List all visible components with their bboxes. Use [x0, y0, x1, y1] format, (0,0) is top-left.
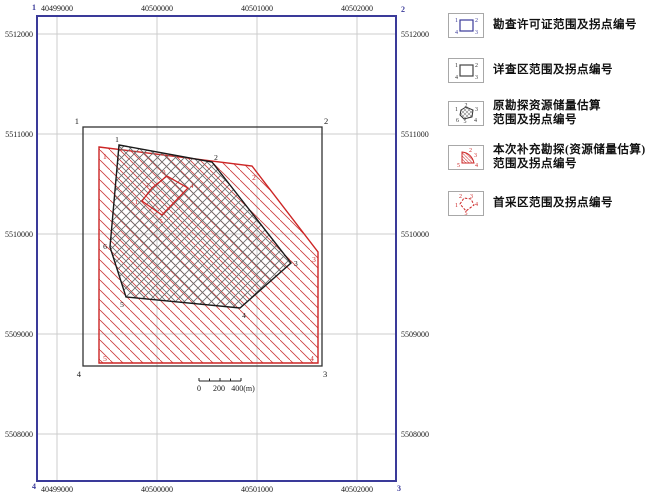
legend-corner-number: 1 [455, 18, 458, 24]
y-axis-label-left: 5512000 [5, 30, 33, 39]
x-axis-label-top: 40499000 [41, 4, 73, 13]
first-mining-corner-label: 2 [146, 182, 149, 189]
legend-corner-number: 1 [455, 107, 458, 113]
first-mining-legend-icon: 1 2 3 4 5 [448, 191, 484, 216]
first-mining-corner-label: 5 [159, 218, 162, 225]
legend-corner-number: 3 [475, 107, 478, 113]
supplement-corner-label: 1 [103, 152, 107, 161]
legend-corner-number: 2 [469, 148, 472, 154]
legend-corner-number: 3 [475, 30, 478, 36]
legend-corner-number: 5 [457, 163, 460, 169]
survey-legend-icon: 1 2 3 4 [448, 58, 484, 83]
survey-corner-label: 3 [323, 369, 327, 379]
legend-corner-number: 2 [475, 63, 478, 69]
y-axis-label-right: 5511000 [401, 130, 429, 139]
x-axis-label-top: 40500000 [141, 4, 173, 13]
y-axis-label-right: 5510000 [401, 230, 429, 239]
supplement-corner-label: 4 [310, 354, 314, 363]
legend-corner-number: 2 [459, 194, 462, 200]
legend-corner-number: 4 [474, 118, 477, 124]
x-axis-label-top: 40502000 [341, 4, 373, 13]
scale-bar-label: 400(m) [231, 384, 255, 393]
permit-corner-label: 1 [32, 3, 36, 12]
scale-bar-line [199, 378, 241, 381]
legend-corner-number: 4 [455, 75, 458, 81]
exploration-corner-label: 5 [120, 300, 124, 309]
legend-corner-number: 4 [455, 30, 458, 36]
legend-corner-number: 2 [465, 103, 468, 109]
x-axis-label-bottom: 40499000 [41, 485, 73, 494]
legend-label: 本次补充勘探(资源储量估算) 范围及拐点编号 [493, 144, 646, 171]
legend-corner-number: 1 [455, 203, 458, 209]
legend-item-permit: 1 2 3 4 勘查许可证范围及拐点编号 [448, 13, 637, 38]
survey-corner-label: 4 [77, 369, 82, 379]
y-axis-label-right: 5508000 [401, 430, 429, 439]
legend-corner-number: 3 [474, 153, 477, 159]
legend-corner-number: 1 [455, 63, 458, 69]
exploration-corner-label: 1 [115, 135, 119, 144]
exploration-corner-label: 2 [214, 153, 218, 162]
first-mining-corner-label: 1 [135, 199, 138, 206]
scale-bar-label: 0 [197, 384, 201, 393]
legend-corner-number: 2 [475, 18, 478, 24]
legend-item-first-mining: 1 2 3 4 5 首采区范围及拐点编号 [448, 191, 613, 216]
legend-label: 首采区范围及拐点编号 [493, 197, 613, 211]
exploration-corner-label: 3 [294, 259, 298, 268]
legend-corner-number: 3 [470, 194, 473, 200]
legend-label: 详查区范围及拐点编号 [493, 64, 613, 78]
legend-corner-number: 4 [475, 202, 478, 208]
y-axis-label-left: 5510000 [5, 230, 33, 239]
scale-bar: 0 200 400(m) [197, 378, 255, 393]
survey-corner-label: 2 [324, 116, 328, 126]
permit-corner-label: 4 [32, 482, 36, 491]
exploration-corner-label: 6 [103, 242, 107, 251]
y-axis-label-left: 5511000 [5, 130, 33, 139]
legend-corner-number: 5 [465, 211, 468, 215]
x-axis-label-bottom: 40500000 [141, 485, 173, 494]
map-canvas: 40499000 40500000 40501000 40502000 4049… [0, 0, 440, 500]
legend-label: 勘查许可证范围及拐点编号 [493, 19, 637, 33]
permit-legend-icon: 1 2 3 4 [448, 13, 484, 38]
survey-corner-label: 1 [75, 116, 79, 126]
y-axis-label-left: 5509000 [5, 330, 33, 339]
legend-item-original-exploration: 1 2 3 4 5 6 原勘探资源储量估算 范围及拐点编号 [448, 100, 601, 127]
supplement-exploration-legend-icon: 2 3 4 5 [448, 145, 484, 170]
legend-label: 原勘探资源储量估算 范围及拐点编号 [493, 100, 601, 127]
x-axis-label-bottom: 40502000 [341, 485, 373, 494]
legend-item-survey: 1 2 3 4 详查区范围及拐点编号 [448, 58, 613, 83]
supplement-corner-label: 3 [312, 255, 316, 264]
y-axis-label-right: 5512000 [401, 30, 429, 39]
scale-bar-label: 200 [213, 384, 225, 393]
permit-corner-label: 2 [401, 5, 405, 14]
legend-corner-number: 6 [456, 118, 459, 124]
exploration-corner-label: 4 [242, 311, 246, 320]
supplement-corner-label: 5 [103, 354, 107, 363]
legend-item-supplement-exploration: 2 3 4 5 本次补充勘探(资源储量估算) 范围及拐点编号 [448, 144, 646, 171]
y-axis-label-right: 5509000 [401, 330, 429, 339]
legend-corner-number: 5 [464, 119, 467, 125]
legend-corner-number: 3 [475, 75, 478, 81]
x-axis-label-top: 40501000 [241, 4, 273, 13]
mining-survey-map-page: 40499000 40500000 40501000 40502000 4049… [0, 0, 664, 500]
first-mining-corner-label: 3 [162, 169, 165, 176]
x-axis-label-bottom: 40501000 [241, 485, 273, 494]
legend-corner-number: 4 [475, 163, 478, 169]
legend: 1 2 3 4 勘查许可证范围及拐点编号 1 2 3 4 [448, 0, 664, 500]
permit-corner-label: 3 [397, 484, 401, 493]
original-exploration-legend-icon: 1 2 3 4 5 6 [448, 101, 484, 126]
y-axis-label-left: 5508000 [5, 430, 33, 439]
supplement-corner-label: 2 [252, 173, 256, 182]
